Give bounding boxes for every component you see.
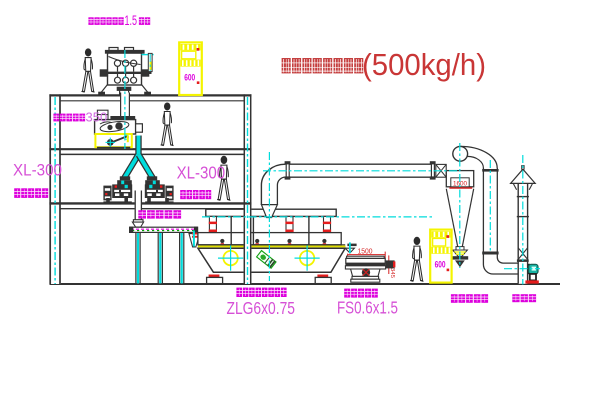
svg-text:600: 600	[435, 260, 446, 270]
svg-text:(500kg/h): (500kg/h)	[362, 47, 486, 82]
svg-text:XL-300: XL-300	[177, 163, 226, 183]
svg-text:345: 345	[389, 268, 395, 278]
svg-text:350: 350	[86, 109, 108, 124]
svg-text:600: 600	[184, 72, 195, 82]
svg-text:XL-300: XL-300	[13, 160, 62, 179]
svg-text:FS0.6x1.5: FS0.6x1.5	[337, 298, 398, 318]
svg-text:1.5: 1.5	[125, 13, 138, 28]
svg-text:1500: 1500	[358, 247, 373, 256]
svg-text:ZLG6x0.75: ZLG6x0.75	[227, 298, 296, 318]
